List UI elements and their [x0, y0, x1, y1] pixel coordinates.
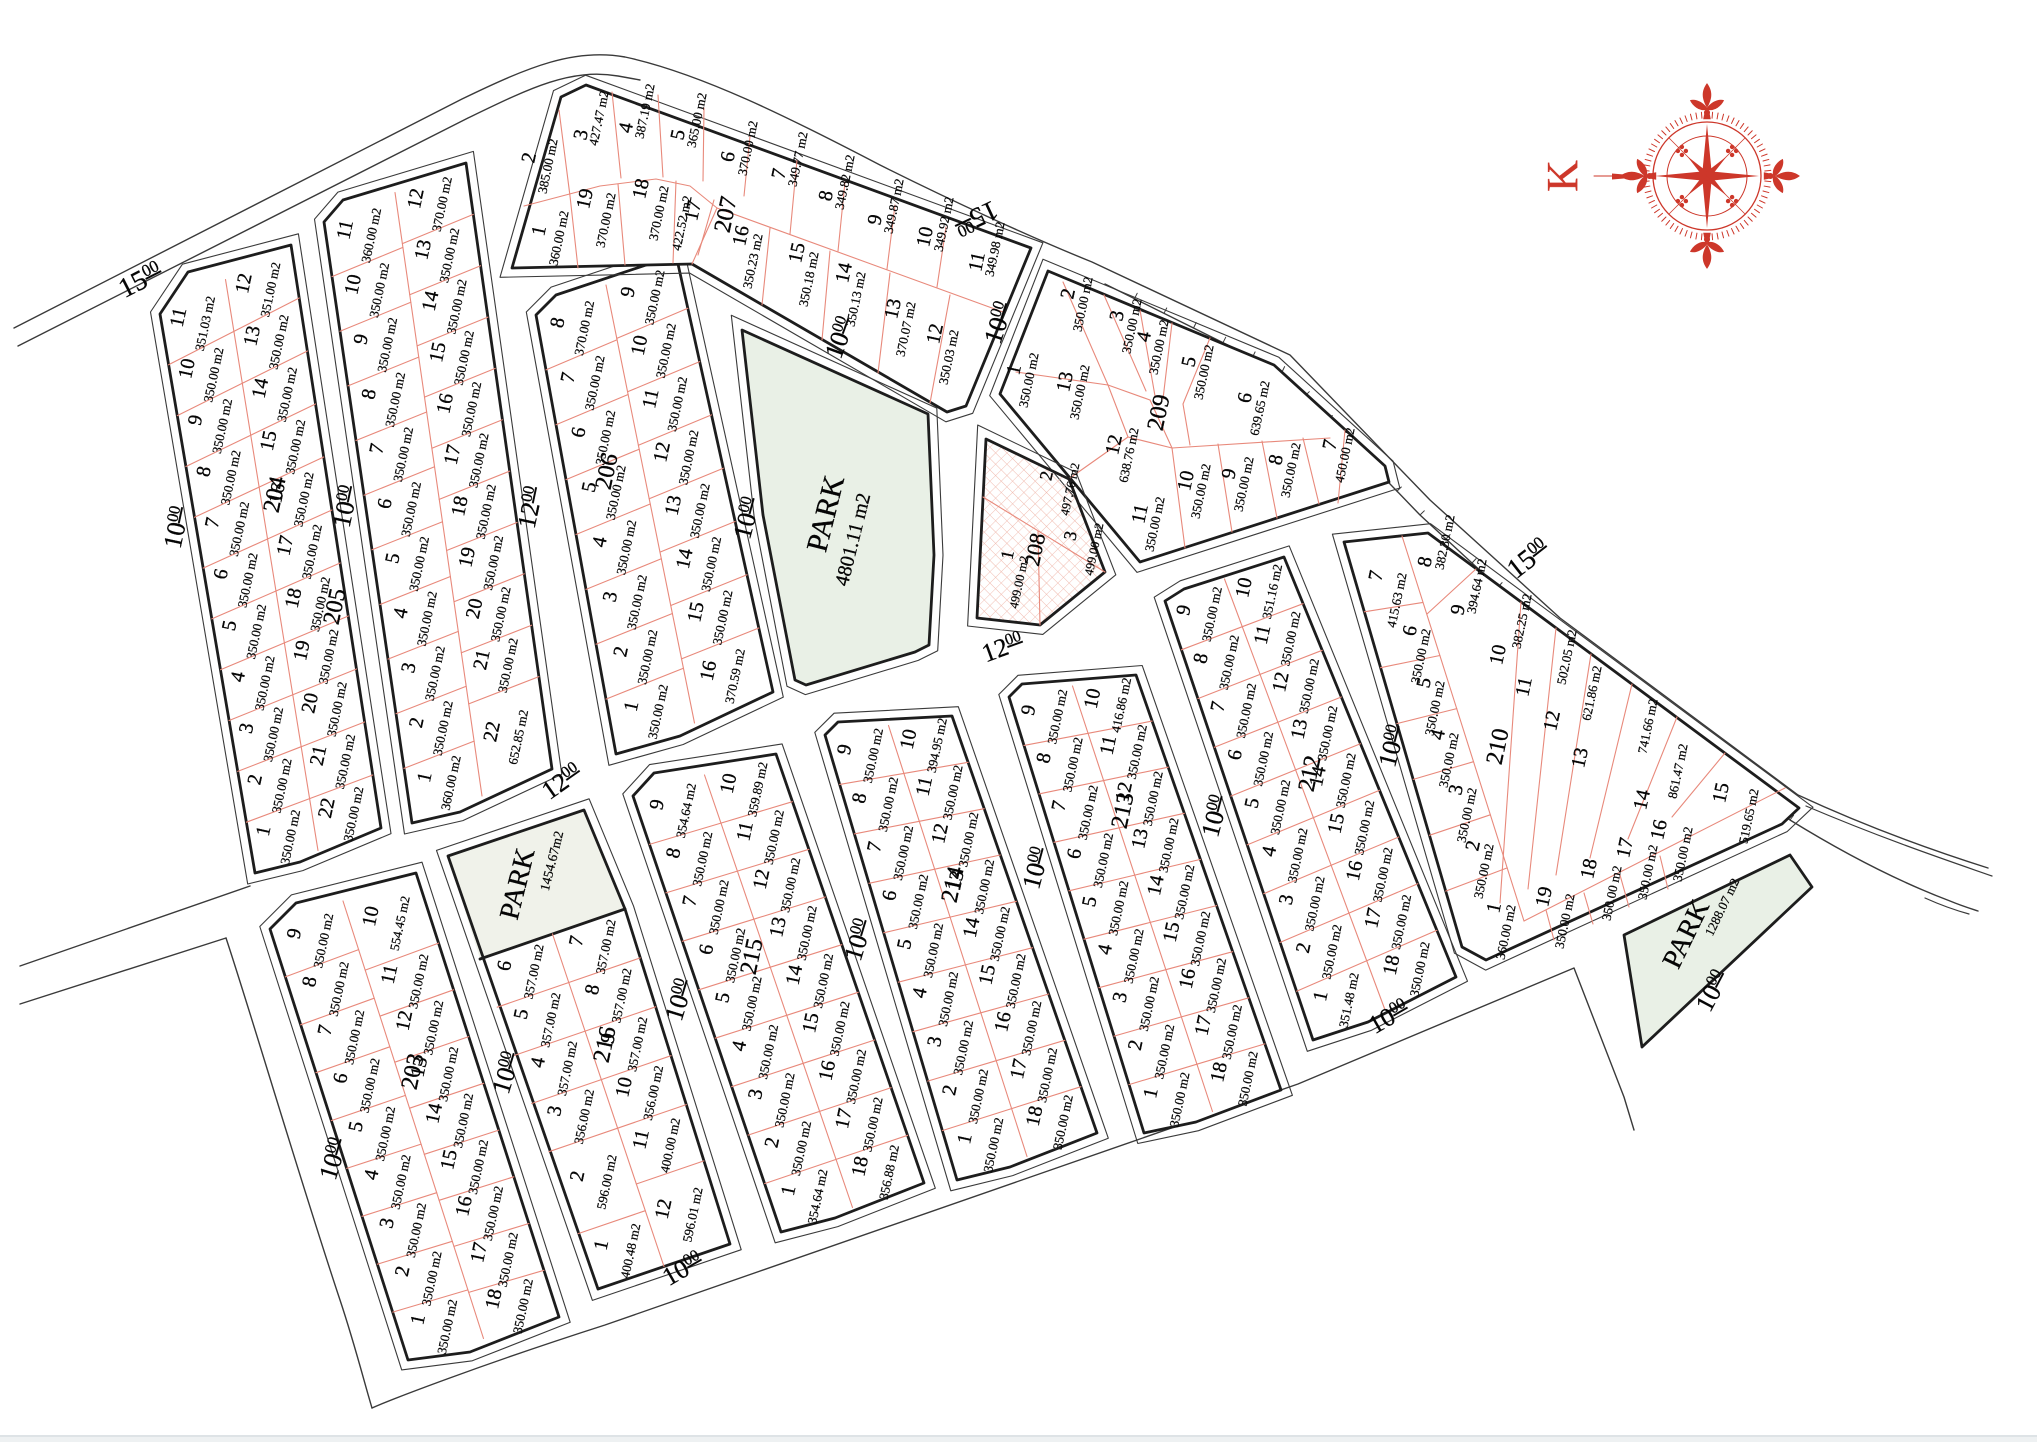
svg-text:K: K: [1538, 160, 1587, 192]
